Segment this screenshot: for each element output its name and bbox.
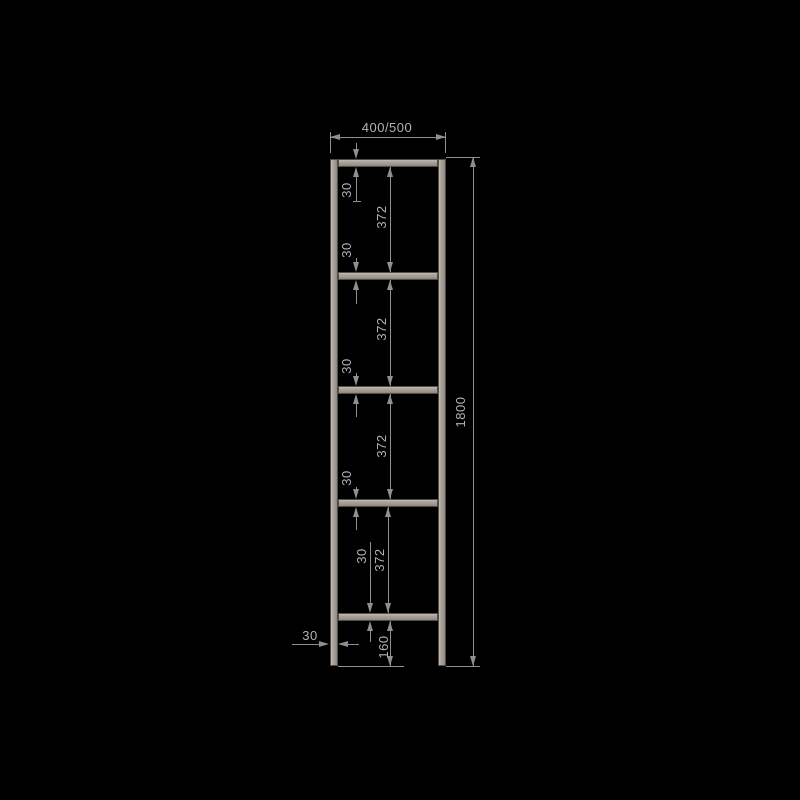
dimension-arrow [436,134,446,140]
rung-4 [338,499,438,507]
dimension-line [388,507,389,613]
dimension-line [330,137,446,138]
gap-dimension-label: 372 [375,200,389,234]
dimension-arrow [330,134,340,140]
thickness-dimension-label: 30 [340,354,354,378]
rung-1 [338,159,438,167]
dimension-arrow [353,149,359,159]
right-rail [438,159,446,666]
dimension-line [370,542,371,604]
dimension-arrow [387,262,393,272]
dimension-line [390,167,391,272]
dimension-arrow [367,603,373,613]
dimension-arrow [387,280,393,290]
dimension-line [473,157,474,666]
rung-5 [338,613,438,621]
thickness-dimension-label: 30 [340,178,354,202]
dimension-arrow [387,167,393,177]
dimension-arrow [470,656,476,666]
dimension-line [356,403,357,417]
dimension-line [356,289,357,304]
dimension-arrow [387,489,393,499]
gap-dimension-label: 372 [373,543,387,577]
extension-line [338,666,404,667]
gap-dimension-label: 372 [375,312,389,346]
gap-dimension-label: 372 [375,429,389,463]
left-rail [330,159,338,666]
dimension-arrow [353,376,359,386]
dimension-line [292,644,320,645]
rung-2 [338,272,438,280]
thickness-dimension-label: 30 [355,544,369,568]
dimension-arrow [353,262,359,272]
rung-3 [338,386,438,394]
dimension-arrow [387,376,393,386]
dimension-arrow [387,621,393,631]
extension-line [446,666,480,667]
drawing-canvas: 400/500 1800 30 30 30 30 30 372 372 372 [0,0,800,800]
dimension-line [390,394,391,499]
dimension-arrow [387,394,393,404]
dimension-arrow [319,641,329,647]
dimension-line [356,176,357,201]
thickness-dimension-label: 30 [340,238,354,262]
bottom-offset-dimension-label: 160 [377,632,391,662]
dimension-line [390,280,391,386]
dimension-line [353,201,361,202]
thickness-dimension-label: 30 [340,466,354,490]
dimension-arrow [385,507,391,517]
dimension-arrow [385,603,391,613]
dimension-line [370,630,371,642]
dimension-arrow [353,489,359,499]
height-dimension-label: 1800 [454,392,468,432]
dimension-arrow [470,157,476,167]
dimension-arrow [338,641,348,647]
dimension-line [348,644,359,645]
dimension-line [356,516,357,530]
width-dimension-label: 400/500 [347,121,427,135]
